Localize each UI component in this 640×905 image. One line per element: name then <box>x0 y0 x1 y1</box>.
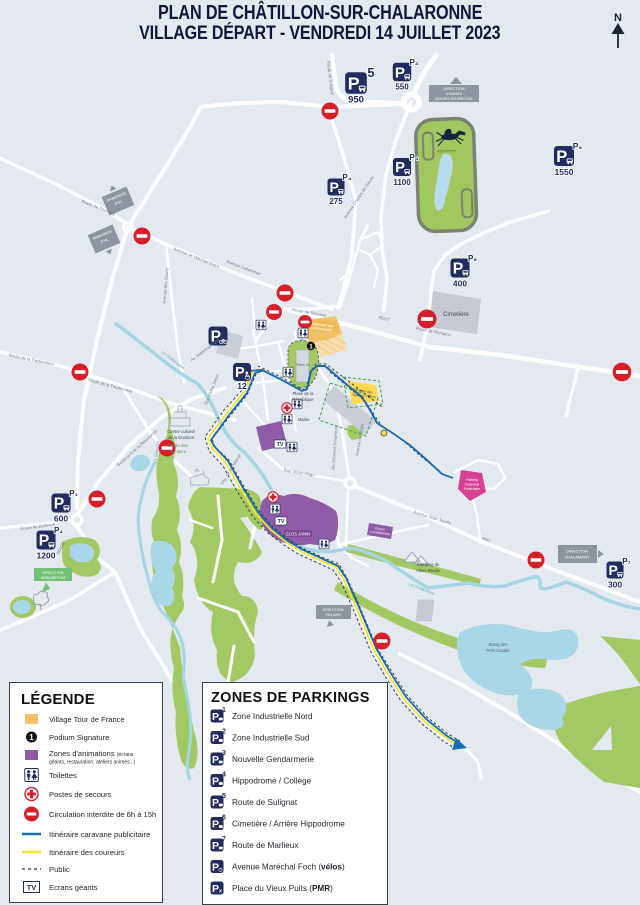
svg-text:Place de la: Place de la <box>293 391 314 396</box>
svg-text:CHALAMONT: CHALAMONT <box>564 555 590 560</box>
svg-text:12: 12 <box>237 381 247 391</box>
svg-text:P₃: P₃ <box>409 58 418 67</box>
svg-text:1200: 1200 <box>37 551 56 561</box>
svg-text:Publicitaire: Publicitaire <box>464 487 481 491</box>
svg-text:P₆: P₆ <box>468 254 477 263</box>
svg-text:Cimetière / Arrière Hippodrome: Cimetière / Arrière Hippodrome <box>232 820 345 829</box>
svg-text:Zone Industrielle Nord: Zone Industrielle Nord <box>232 712 313 721</box>
svg-text:VILLARS: VILLARS <box>325 613 341 617</box>
svg-text:Postes de secours: Postes de secours <box>49 790 112 799</box>
svg-text:Centre culturel: Centre culturel <box>167 429 194 434</box>
svg-text:1: 1 <box>309 344 313 351</box>
svg-text:Camping du: Camping du <box>417 562 440 567</box>
svg-text:950: 950 <box>348 95 364 106</box>
svg-text:P: P <box>235 365 245 381</box>
svg-text:P₁: P₁ <box>69 489 78 498</box>
svg-text:1: 1 <box>222 707 226 714</box>
svg-text:Itinéraire caravane publicitai: Itinéraire caravane publicitaire <box>49 830 150 839</box>
svg-text:Nouvelle Gendarmerie: Nouvelle Gendarmerie <box>232 755 314 764</box>
svg-text:TV: TV <box>27 883 37 892</box>
svg-text:DIRECTION: DIRECTION <box>444 87 465 91</box>
svg-text:1100: 1100 <box>393 178 411 187</box>
svg-text:Zone Industrielle Sud: Zone Industrielle Sud <box>232 734 310 743</box>
svg-text:Village Tour de France: Village Tour de France <box>49 715 125 724</box>
svg-text:DIRECTION: DIRECTION <box>43 571 64 575</box>
svg-text:Public: Public <box>49 865 70 874</box>
svg-text:Jardin des: Jardin des <box>168 443 189 448</box>
svg-text:3: 3 <box>222 750 226 757</box>
svg-text:Route de Sulignat: Route de Sulignat <box>232 798 298 807</box>
svg-text:600: 600 <box>54 514 68 524</box>
svg-text:République: République <box>292 397 314 402</box>
svg-text:Etang des: Etang des <box>489 642 508 647</box>
svg-text:300: 300 <box>608 580 622 590</box>
svg-text:Podium Signature: Podium Signature <box>49 733 109 742</box>
svg-text:Parking: Parking <box>466 478 478 482</box>
svg-text:Avenue Maréchal Foch (vélos): Avenue Maréchal Foch (vélos) <box>232 863 345 872</box>
svg-text:Vieux Moulin: Vieux Moulin <box>416 568 441 573</box>
svg-text:DIRECTION: DIRECTION <box>566 549 588 554</box>
svg-text:P: P <box>212 861 219 873</box>
svg-text:CLOS JANIN: CLOS JANIN <box>286 532 311 537</box>
svg-text:Ecrans géants: Ecrans géants <box>49 883 98 892</box>
svg-text:P₉: P₉ <box>573 141 583 151</box>
svg-text:Caravane: Caravane <box>465 483 480 487</box>
svg-text:275: 275 <box>329 197 343 206</box>
svg-text:Place du: Place du <box>296 363 309 367</box>
svg-text:BOURG-EN-BRESSE: BOURG-EN-BRESSE <box>435 97 473 101</box>
svg-text:de la Dombes: de la Dombes <box>168 435 194 440</box>
svg-text:7: 7 <box>222 836 226 843</box>
svg-text:ARBORETUM: ARBORETUM <box>41 576 65 580</box>
svg-text:Prés Caudet: Prés Caudet <box>486 648 510 653</box>
svg-text:4: 4 <box>222 772 226 779</box>
svg-text:5: 5 <box>367 65 374 80</box>
svg-text:1550: 1550 <box>555 167 574 177</box>
svg-text:Cimetière: Cimetière <box>443 312 469 318</box>
svg-text:Circulation interdite de 6h à: Circulation interdite de 6h à 15h <box>49 810 156 819</box>
svg-text:Hippodrome: Hippodrome <box>437 149 456 154</box>
svg-text:550: 550 <box>395 83 409 92</box>
svg-text:Mairie: Mairie <box>298 417 310 422</box>
svg-text:Hippodrome / Collège: Hippodrome / Collège <box>232 777 312 786</box>
svg-text:P₇: P₇ <box>622 557 631 566</box>
svg-text:400: 400 <box>453 279 467 289</box>
svg-text:P₄: P₄ <box>342 173 351 182</box>
svg-text:Simples: Simples <box>170 449 186 454</box>
svg-text:Route de Marlieux: Route de Marlieux <box>232 841 298 850</box>
svg-text:6: 6 <box>222 815 226 822</box>
svg-text:Toilettes: Toilettes <box>49 771 77 780</box>
svg-text:5: 5 <box>222 793 226 800</box>
svg-text:Itinéraire des coureurs: Itinéraire des coureurs <box>49 848 125 857</box>
svg-text:1: 1 <box>29 733 34 742</box>
svg-text:Zones d'animations (écrans: Zones d'animations (écrans <box>49 749 134 758</box>
svg-text:géants, restauration, ateliers: géants, restauration, ateliers animés...… <box>49 760 136 766</box>
svg-text:DIRECTION: DIRECTION <box>323 608 344 612</box>
svg-text:P₄: P₄ <box>409 153 418 162</box>
svg-text:P₂: P₂ <box>54 526 63 535</box>
svg-text:Place du Vieux Puits (PMR): Place du Vieux Puits (PMR) <box>232 884 333 893</box>
svg-text:VONNAS: VONNAS <box>446 92 463 96</box>
svg-text:P: P <box>212 883 219 895</box>
svg-text:2: 2 <box>222 729 226 736</box>
